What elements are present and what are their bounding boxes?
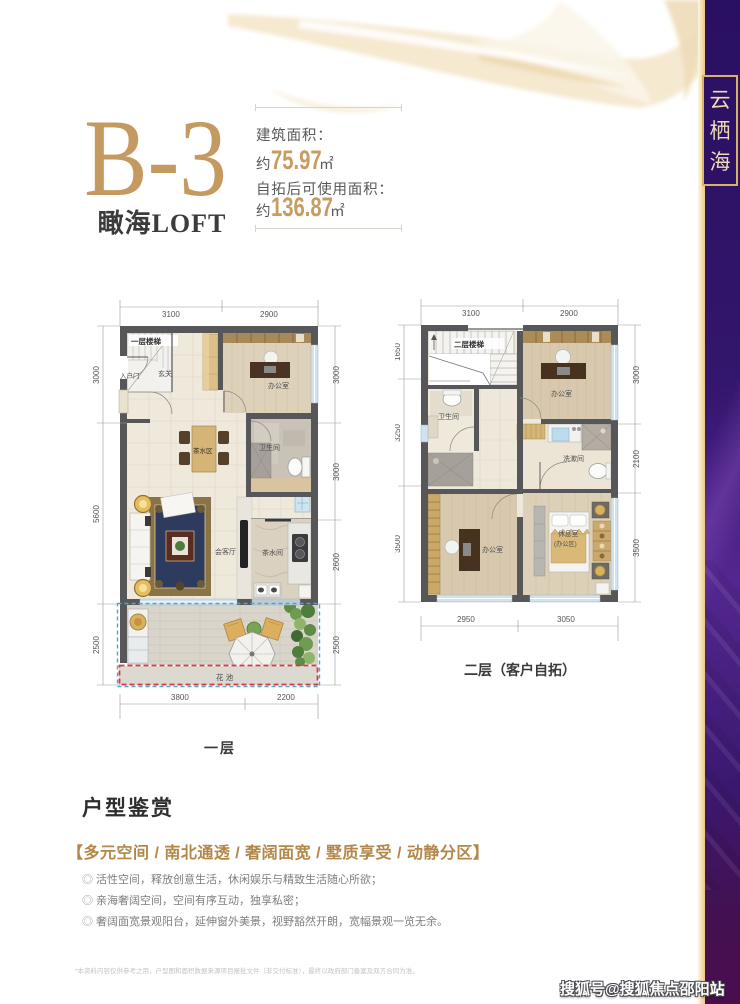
svg-text:3100: 3100	[162, 310, 180, 319]
svg-text:玄关: 玄关	[158, 369, 172, 378]
svg-text:2900: 2900	[560, 309, 578, 318]
svg-text:茶水区: 茶水区	[193, 446, 213, 455]
svg-text:会客厅: 会客厅	[215, 547, 236, 556]
svg-text:办公室: 办公室	[482, 545, 503, 554]
svg-text:3000: 3000	[92, 366, 101, 384]
svg-text:2950: 2950	[457, 615, 475, 624]
svg-text:洗漱间: 洗漱间	[563, 454, 584, 463]
svg-text:卫生间: 卫生间	[259, 443, 280, 452]
svg-text:3000: 3000	[332, 366, 341, 384]
svg-text:一层楼梯: 一层楼梯	[131, 336, 161, 346]
svg-text:2600: 2600	[332, 553, 341, 571]
svg-text:3250: 3250	[395, 424, 402, 442]
svg-text:茶水间: 茶水间	[262, 548, 283, 557]
svg-text:2100: 2100	[632, 450, 641, 468]
svg-text:入户门: 入户门	[120, 371, 140, 380]
svg-text:2900: 2900	[260, 310, 278, 319]
svg-text:花 池: 花 池	[216, 672, 234, 682]
svg-text:卫生间: 卫生间	[438, 412, 459, 421]
svg-text:二层楼梯: 二层楼梯	[454, 339, 484, 349]
svg-text:3500: 3500	[632, 539, 641, 557]
svg-text:(办公区): (办公区)	[554, 540, 577, 548]
svg-text:休息室: 休息室	[558, 529, 579, 538]
svg-text:办公室: 办公室	[551, 389, 572, 398]
svg-text:1650: 1650	[395, 343, 402, 361]
svg-text:2500: 2500	[92, 636, 101, 654]
svg-text:3000: 3000	[332, 463, 341, 481]
svg-text:3800: 3800	[171, 693, 189, 702]
svg-text:2200: 2200	[277, 693, 295, 702]
svg-text:办公室: 办公室	[268, 381, 289, 390]
svg-text:3500: 3500	[395, 535, 402, 553]
svg-text:3000: 3000	[632, 366, 641, 384]
svg-text:3100: 3100	[462, 309, 480, 318]
svg-text:5600: 5600	[92, 505, 101, 523]
svg-text:2500: 2500	[332, 636, 341, 654]
svg-text:3050: 3050	[557, 615, 575, 624]
